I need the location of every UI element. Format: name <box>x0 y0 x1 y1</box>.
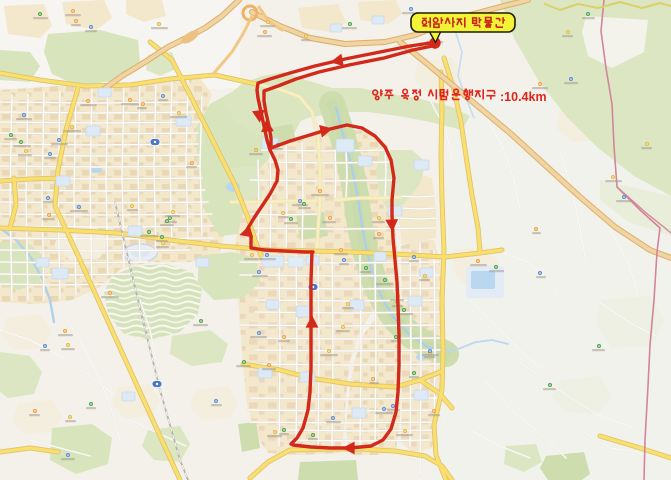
svg-text::10.4km: :10.4km <box>500 90 547 104</box>
